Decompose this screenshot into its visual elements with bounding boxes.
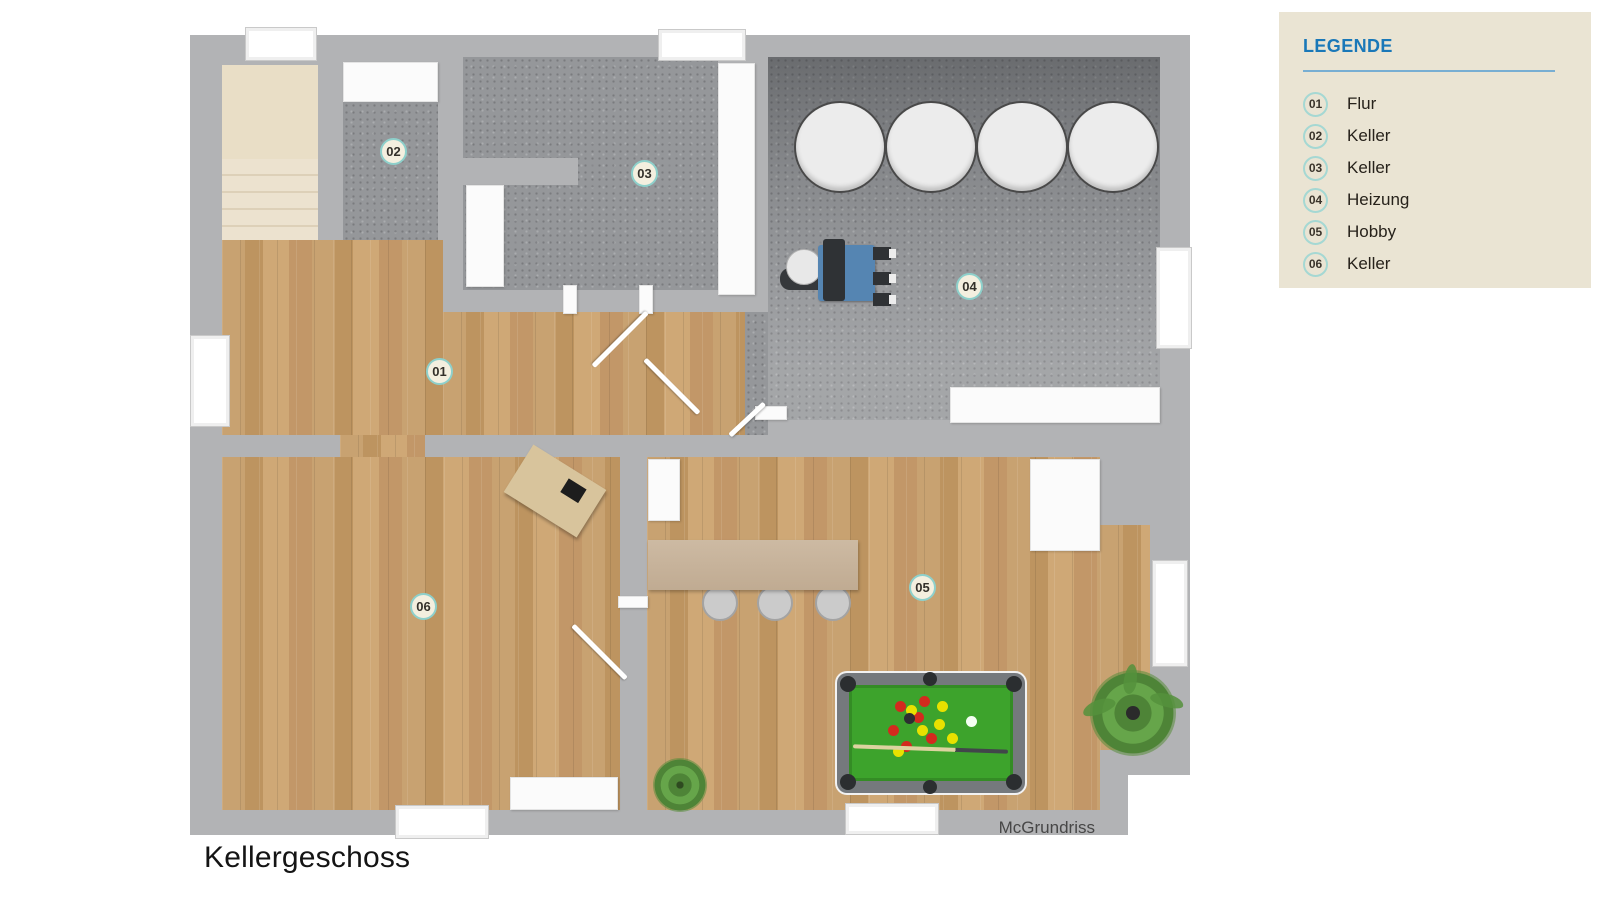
door-post-room06-room05 xyxy=(618,596,648,608)
legend-item-keller-06: 06 Keller xyxy=(1303,248,1591,280)
boiler-valve-cap-2 xyxy=(889,274,896,283)
stair-steps xyxy=(222,159,318,247)
legend-item-heizung: 04 Heizung xyxy=(1303,184,1591,216)
room-marker-05: 05 xyxy=(909,574,936,601)
pool-pocket-bottom-mid xyxy=(923,780,937,794)
room-marker-01-number: 01 xyxy=(432,364,446,379)
room-02-storage-area xyxy=(343,62,438,102)
legend-item-hobby: 05 Hobby xyxy=(1303,216,1591,248)
window-top-stairs xyxy=(245,27,317,61)
room-05-closet-right xyxy=(1030,459,1100,551)
room-marker-02: 02 xyxy=(380,138,407,165)
pool-table xyxy=(837,673,1025,793)
room-marker-04-number: 04 xyxy=(962,279,976,294)
legend-number-badge: 03 xyxy=(1303,156,1328,181)
room-06-sideboard xyxy=(510,777,618,810)
legend-label: Keller xyxy=(1347,254,1390,274)
legend-number-badge: 06 xyxy=(1303,252,1328,277)
window-bottom-room06 xyxy=(395,805,489,839)
boiler-valve-cap-1 xyxy=(889,249,896,258)
exterior-notch xyxy=(1128,775,1190,835)
room-05-closet-left xyxy=(648,459,680,521)
legend-label: Flur xyxy=(1347,94,1376,114)
legend-label: Keller xyxy=(1347,126,1390,146)
room-marker-03-number: 03 xyxy=(637,166,651,181)
room-marker-05-number: 05 xyxy=(915,580,929,595)
door-panel-room03-room04 xyxy=(718,63,755,295)
boiler-valve-cap-3 xyxy=(889,295,896,304)
hallway-floor-left xyxy=(222,240,443,435)
legend-item-keller-02: 02 Keller xyxy=(1303,120,1591,152)
room-marker-02-number: 02 xyxy=(386,144,400,159)
legend-item-keller-03: 03 Keller xyxy=(1303,152,1591,184)
floor-title: Kellergeschoss xyxy=(204,841,410,875)
legend-number-badge: 05 xyxy=(1303,220,1328,245)
bar-stool-1 xyxy=(702,585,738,621)
heating-tank-3 xyxy=(976,101,1068,193)
boiler-pump-dome xyxy=(786,249,822,285)
legend-label: Heizung xyxy=(1347,190,1409,210)
window-right-room04 xyxy=(1156,247,1192,349)
room-marker-04: 04 xyxy=(956,273,983,300)
pool-pocket-bl xyxy=(840,774,856,790)
pool-pocket-tl xyxy=(840,676,856,692)
bar-stool-3 xyxy=(815,585,851,621)
plant-pot-center xyxy=(1126,706,1140,720)
pool-pocket-tr xyxy=(1006,676,1022,692)
door-post-room03-b xyxy=(639,285,653,314)
bar-counter xyxy=(648,540,858,590)
boiler-unit xyxy=(775,233,895,303)
legend-label: Keller xyxy=(1347,158,1390,178)
heating-tank-2 xyxy=(885,101,977,193)
legend-number-badge: 01 xyxy=(1303,92,1328,117)
room-03-cabinet xyxy=(466,185,504,287)
pool-felt xyxy=(849,685,1013,781)
room-marker-06-number: 06 xyxy=(416,599,430,614)
door-post-room03-a xyxy=(563,285,577,314)
staircase xyxy=(222,65,318,247)
plant-small xyxy=(653,758,707,812)
window-right-room05 xyxy=(1152,560,1188,667)
legend-divider xyxy=(1303,70,1555,72)
heating-tank-4 xyxy=(1067,101,1159,193)
window-left-hallway xyxy=(190,335,230,427)
window-top-room03 xyxy=(658,29,746,61)
legend-label: Hobby xyxy=(1347,222,1396,242)
legend-number-badge: 04 xyxy=(1303,188,1328,213)
red-balls xyxy=(895,701,906,712)
plant-large xyxy=(1090,670,1176,756)
laptop xyxy=(560,478,586,503)
legend-number-badge: 02 xyxy=(1303,124,1328,149)
boiler-riser xyxy=(823,239,845,301)
legend-item-flur: 01 Flur xyxy=(1303,88,1591,120)
room-03-inner-wall xyxy=(463,158,578,185)
pool-pocket-top-mid xyxy=(923,672,937,686)
floorplan-page: 01 02 03 04 05 06 McGrundriss LEGENDE 01… xyxy=(0,0,1600,901)
watermark: McGrundriss xyxy=(890,818,1095,838)
heating-tank-1 xyxy=(794,101,886,193)
floorplan-canvas: 01 02 03 04 05 06 McGrundriss xyxy=(190,35,1190,835)
cue-ball xyxy=(966,716,977,727)
room-marker-03: 03 xyxy=(631,160,658,187)
room-04-bench xyxy=(950,387,1160,423)
opening-hall-to-room06 xyxy=(340,435,425,457)
room-marker-06: 06 xyxy=(410,593,437,620)
pool-pocket-br xyxy=(1006,774,1022,790)
room-marker-01: 01 xyxy=(426,358,453,385)
stair-winders xyxy=(222,65,318,159)
bar-stool-2 xyxy=(757,585,793,621)
legend-panel: LEGENDE 01 Flur 02 Keller 03 Keller 04 H… xyxy=(1279,12,1591,288)
black-ball xyxy=(904,713,915,724)
hallway-floor-right xyxy=(443,312,755,435)
legend-title: LEGENDE xyxy=(1303,36,1591,57)
